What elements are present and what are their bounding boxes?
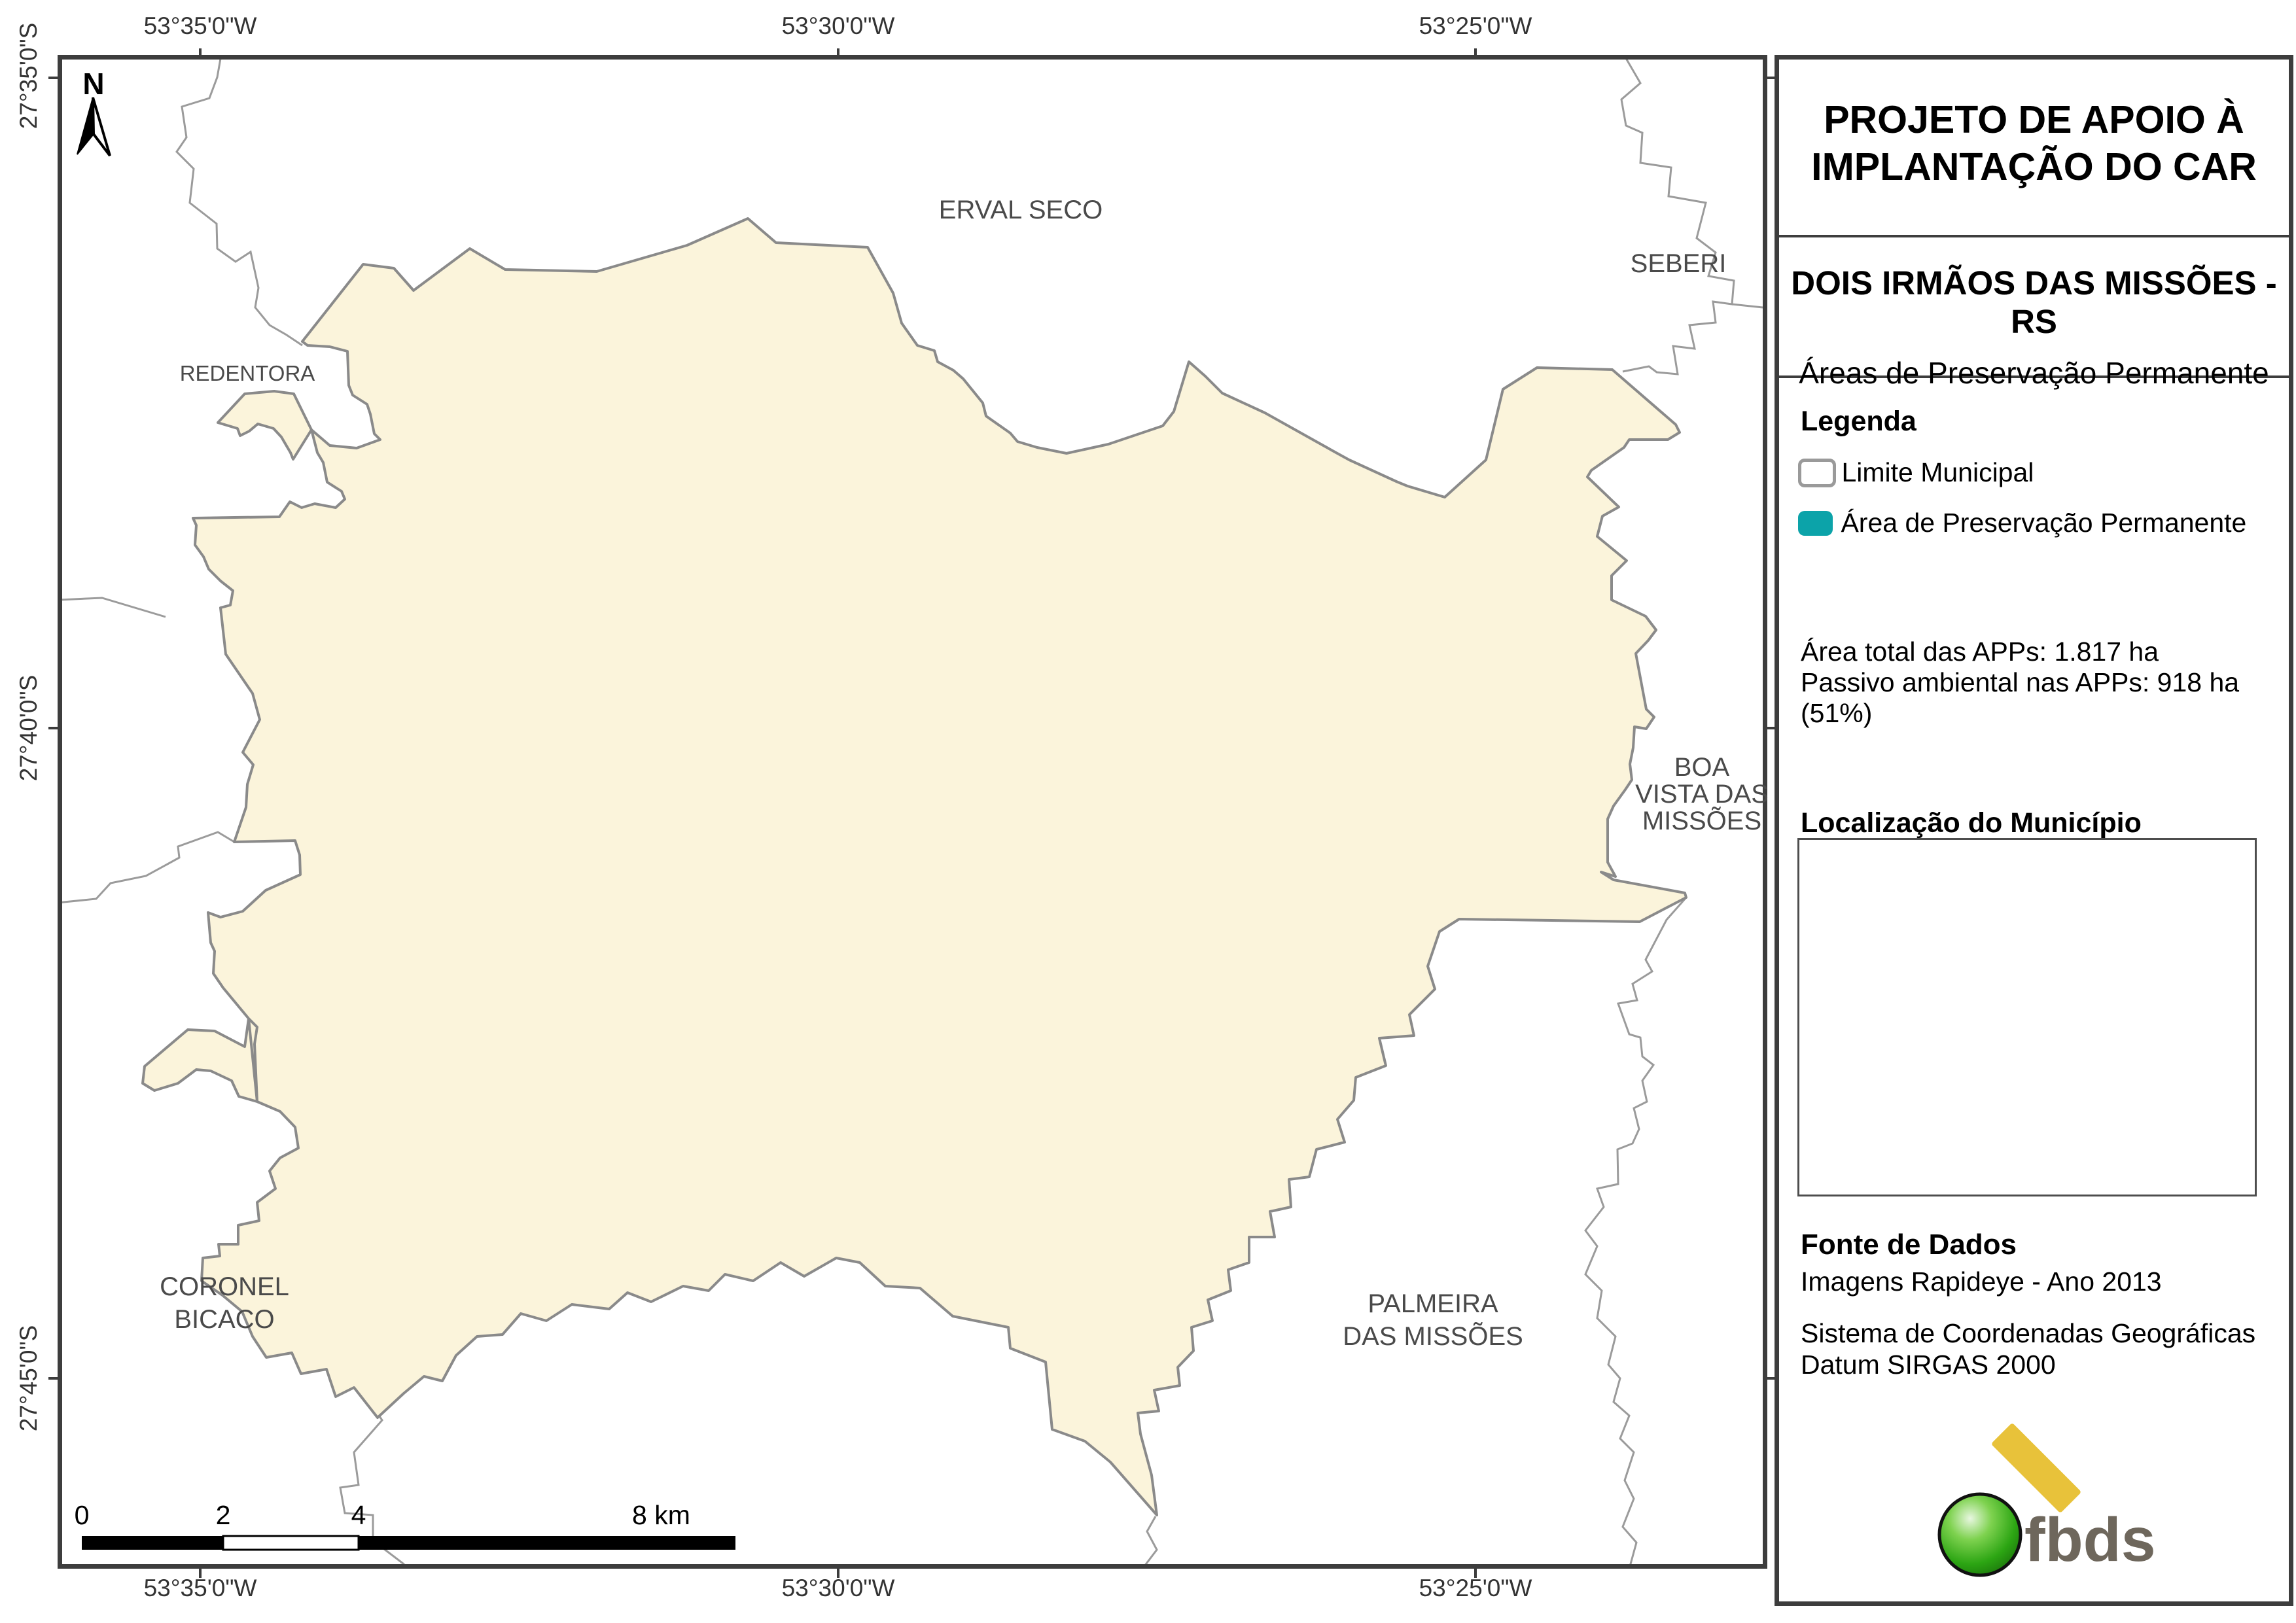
svg-text:ERVAL SECO: ERVAL SECO [939, 196, 1103, 224]
svg-text:53°35'0"W: 53°35'0"W [144, 1575, 257, 1601]
svg-text:BOA: BOA [1674, 753, 1730, 782]
svg-text:27°40'0"S: 27°40'0"S [15, 675, 42, 782]
svg-text:N: N [82, 67, 104, 101]
svg-text:53°35'0"W: 53°35'0"W [144, 12, 257, 39]
svg-text:8 km: 8 km [632, 1500, 690, 1530]
svg-text:53°30'0"W: 53°30'0"W [782, 12, 895, 39]
svg-text:0: 0 [75, 1500, 90, 1530]
svg-text:53°25'0"W: 53°25'0"W [1419, 12, 1532, 39]
svg-text:REDENTORA: REDENTORA [180, 361, 315, 385]
svg-text:53°25'0"W: 53°25'0"W [1419, 1575, 1532, 1601]
svg-text:DAS MISSÕES: DAS MISSÕES [1343, 1321, 1523, 1351]
svg-text:4: 4 [351, 1500, 366, 1530]
svg-text:CORONEL: CORONEL [160, 1272, 289, 1301]
svg-text:PALMEIRA: PALMEIRA [1368, 1289, 1498, 1318]
svg-text:27°35'0"S: 27°35'0"S [15, 23, 42, 130]
svg-text:27°45'0"S: 27°45'0"S [15, 1325, 42, 1432]
svg-text:2: 2 [216, 1500, 231, 1530]
svg-text:SEBERI: SEBERI [1631, 249, 1727, 278]
svg-text:fbds: fbds [2024, 1505, 2156, 1575]
svg-text:VISTA DAS: VISTA DAS [1635, 780, 1769, 809]
svg-text:BICACO: BICACO [174, 1305, 274, 1334]
svg-text:53°30'0"W: 53°30'0"W [782, 1575, 895, 1601]
svg-text:MISSÕES: MISSÕES [1642, 806, 1761, 835]
